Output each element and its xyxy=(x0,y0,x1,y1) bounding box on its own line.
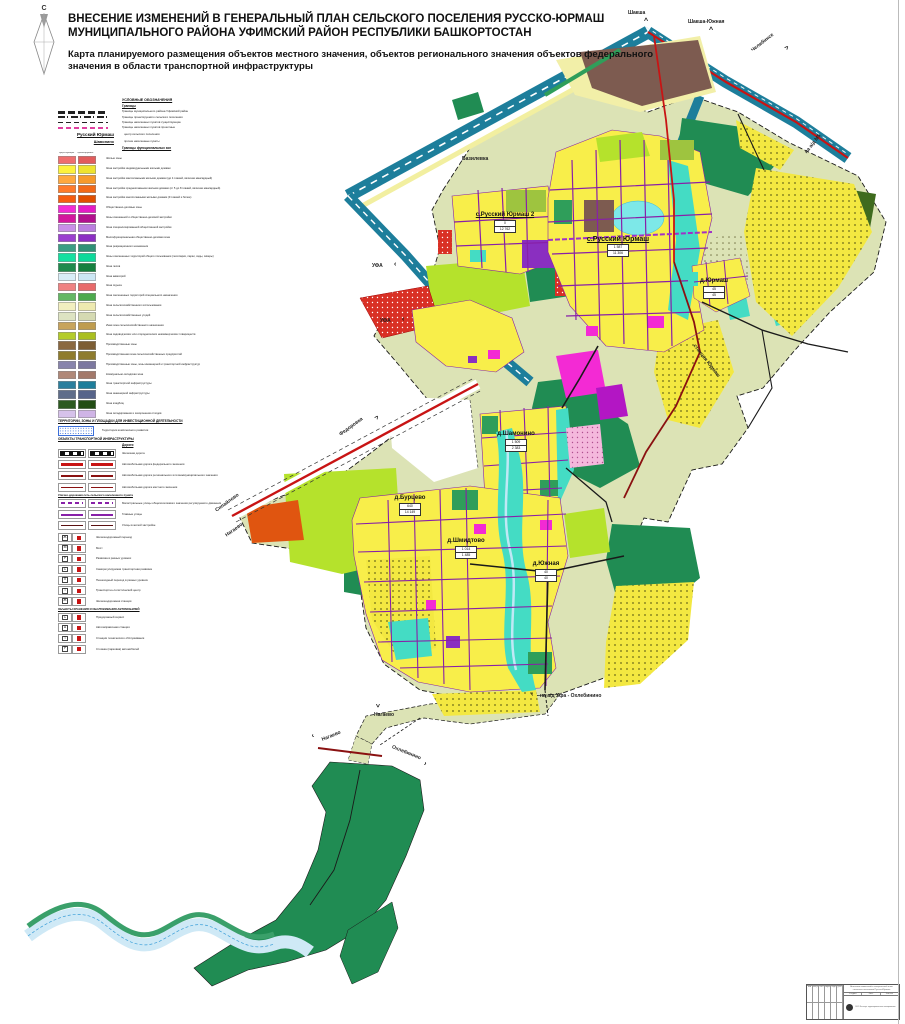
legend-object-row: РРазвязка в разных уровнях xyxy=(58,554,240,563)
object-symbol-existing: Ж xyxy=(58,533,72,542)
object-symbol-existing: Т xyxy=(58,634,72,643)
road-swatch-planned xyxy=(88,499,116,508)
legend-road-row: Автомобильная дорога местного значения xyxy=(58,483,240,492)
stamp-cell: Дата xyxy=(837,985,843,1002)
legend-zone-row: Многофункциональная общественно-деловая … xyxy=(58,234,240,242)
zone-swatch-existing xyxy=(58,263,76,271)
zone-swatch-existing xyxy=(58,205,76,213)
zone-swatch-existing xyxy=(58,341,76,349)
zone-swatch-planned xyxy=(78,156,96,164)
legend-zone-row: Зона сельскохозяйственного использования xyxy=(58,302,240,310)
road-swatch-existing xyxy=(58,521,86,530)
red-square-icon xyxy=(77,599,81,603)
zone-swatch-existing xyxy=(58,410,76,418)
road-swatch-planned xyxy=(88,483,116,492)
legend-object-row: ТСтанция технического обслуживания xyxy=(58,634,240,643)
road-swatch-planned xyxy=(88,471,116,480)
zone-swatch-existing xyxy=(58,175,76,183)
legend-zone-row: Зона застройки среднеэтажными жилыми дом… xyxy=(58,185,240,193)
legend-boundary-row: Границы проектируемого сельского поселен… xyxy=(58,116,240,119)
legend-label: Пешеходный переход в разных уровнях xyxy=(96,579,240,582)
legend-object-row: ААвтозаправочная станция xyxy=(58,623,240,632)
org-logo xyxy=(846,1004,853,1011)
legend-label: Зона отдыха xyxy=(106,285,240,288)
stamp-sheet-label: Лист xyxy=(862,993,880,995)
zone-swatch-existing xyxy=(58,332,76,340)
legend-label: Зона специализированной общественной зас… xyxy=(106,227,240,230)
legend-panel: УСЛОВНЫЕ ОБОЗНАЧЕНИЯ Границы Границы мун… xyxy=(58,96,240,655)
zone-swatch-existing xyxy=(58,165,76,173)
road-swatch-planned xyxy=(88,449,116,458)
legend-label: Зона транспортной инфраструктуры xyxy=(106,383,240,386)
cluster-russky-yurmash-2 xyxy=(452,186,562,274)
object-symbol-planned xyxy=(72,576,86,585)
legend-label: Придорожный сервис xyxy=(96,616,240,619)
legend-invest-title: ТЕРРИТОРИИ, ЗОНЫ И ПЛОЩАДКИ ДЛЯ ИНВЕСТИЦ… xyxy=(58,420,240,424)
invest-pattern-swatch xyxy=(58,426,94,436)
legend-streets-title: Улично-дорожная сеть сельского населенно… xyxy=(58,494,240,497)
road-swatch-planned xyxy=(88,460,116,469)
legend-invest-row: Территории комплексного развития xyxy=(58,426,240,436)
legend-object-row: РСтоянка (парковка) автомобилей xyxy=(58,645,240,654)
legend-label: Улицы в жилой застройке xyxy=(122,524,240,527)
zone-swatch-existing xyxy=(58,371,76,379)
object-symbol-planned xyxy=(72,623,86,632)
road-swatch-planned xyxy=(88,510,116,519)
stamp-stage-label: Стадия xyxy=(844,993,862,995)
zone-swatch-planned xyxy=(78,381,96,389)
object-symbol-existing: Ж xyxy=(58,597,72,606)
legend-center-row: Шамонинопрочие населенные пункты xyxy=(58,140,240,144)
zone-swatch-planned xyxy=(78,312,96,320)
zone-swatch-planned xyxy=(78,390,96,398)
legend-center-row: Русский Юрмашцентр сельского поселения xyxy=(58,132,240,137)
legend-zone-row: Зона кладбищ xyxy=(58,400,240,408)
zone-swatch-planned xyxy=(78,175,96,183)
legend-label: Зона застройки среднеэтажными жилыми дом… xyxy=(106,188,240,191)
zone-swatch-planned xyxy=(78,293,96,301)
boundary-line-swatch xyxy=(58,111,108,114)
legend-label: Саморегулируемая транспортная развязка xyxy=(96,568,240,571)
object-symbol-planned xyxy=(72,613,86,622)
object-symbol-planned xyxy=(72,645,86,654)
settlement-name-sample: Русский Юрмаш xyxy=(58,132,116,137)
legend-zone-row: Зона специализированной общественной зас… xyxy=(58,224,240,232)
object-symbol-planned xyxy=(72,586,86,595)
legend-label: Зона садоводческих или огороднических не… xyxy=(106,334,240,337)
legend-zone-row: Зона инженерной инфраструктуры xyxy=(58,390,240,398)
legend-road-row: Автомобильная дорога федерального значен… xyxy=(58,460,240,469)
legend-label: Железнодорожный переезд xyxy=(96,536,240,539)
legend-road-row: Улицы в жилой застройке xyxy=(58,521,240,530)
legend-zone-row: Зона акваторий xyxy=(58,273,240,281)
legend-road-row: Автомобильная дорога регионального или м… xyxy=(58,471,240,480)
zone-swatch-existing xyxy=(58,283,76,291)
zone-swatch-planned xyxy=(78,400,96,408)
zone-swatch-planned xyxy=(78,322,96,330)
legend-zone-row: Производственные зоны xyxy=(58,341,240,349)
zone-swatch-planned xyxy=(78,302,96,310)
map-title: ВНЕСЕНИЕ ИЗМЕНЕНИЙ В ГЕНЕРАЛЬНЫЙ ПЛАН СЕ… xyxy=(68,12,688,41)
legend-label: Зона застройки малоэтажными жилыми домам… xyxy=(106,178,240,181)
zone-swatch-planned xyxy=(78,273,96,281)
object-symbol-existing: С xyxy=(58,613,72,622)
stamp-org: ООО Институт территориального планирован… xyxy=(855,1007,895,1009)
boundary-line-swatch xyxy=(58,122,108,123)
legend-zone-row: Зоны смешанной и общественно-деловой зас… xyxy=(58,214,240,222)
legend-zone-row: Зона транспортной инфраструктуры xyxy=(58,381,240,389)
legend-label: Территории комплексного развития xyxy=(102,429,240,432)
object-symbol-planned xyxy=(72,634,86,643)
object-symbol-existing: С xyxy=(58,565,72,574)
legend-label: Зона лесов xyxy=(106,266,240,269)
object-symbol-planned xyxy=(72,554,86,563)
north-arrow: С xyxy=(26,2,62,87)
legend-label: Зоны смешанной и общественно-деловой зас… xyxy=(106,217,240,220)
legend-zone-row: Зона отдыха xyxy=(58,283,240,291)
zone-swatch-existing xyxy=(58,381,76,389)
legend-zone-row: Зона застройки многоэтажными жилыми дома… xyxy=(58,195,240,203)
legend-boundary-row: Границы населенных пунктов проектные xyxy=(58,126,240,129)
legend-road-row: Главные улицы xyxy=(58,510,240,519)
legend-zone-row: Коммунально-складская зона xyxy=(58,371,240,379)
zone-swatch-existing xyxy=(58,390,76,398)
road-swatch-existing xyxy=(58,471,86,480)
zone-swatch-planned xyxy=(78,253,96,261)
zone-swatch-planned xyxy=(78,263,96,271)
zone-swatch-existing xyxy=(58,214,76,222)
zone-swatch-planned xyxy=(78,341,96,349)
zone-swatch-planned xyxy=(78,185,96,193)
red-square-icon xyxy=(77,636,81,640)
legend-label: Многофункциональная общественно-деловая … xyxy=(106,237,240,240)
legend-title: УСЛОВНЫЕ ОБОЗНАЧЕНИЯ xyxy=(122,99,240,103)
red-square-icon xyxy=(77,546,81,550)
zone-swatch-existing xyxy=(58,185,76,193)
object-symbol-planned xyxy=(72,533,86,542)
legend-object-row: ММост xyxy=(58,544,240,553)
legend-boundary-row: Границы населенных пунктов существующие xyxy=(58,121,240,124)
zone-swatch-existing xyxy=(58,312,76,320)
zone-swatch-planned xyxy=(78,205,96,213)
legend-zone-row: Зона сельскохозяйственных угодий xyxy=(58,312,240,320)
legend-zone-row: Зона застройки малоэтажными жилыми домам… xyxy=(58,175,240,183)
legend-boundaries-title: Границы xyxy=(122,105,240,109)
map-sheet: { "header": { "title": "ВНЕСЕНИЕ ИЗМЕНЕН… xyxy=(0,0,905,1024)
legend-label: Границы населенных пунктов проектные xyxy=(122,126,240,129)
legend-label: Общественно-деловые зоны xyxy=(106,207,240,210)
legend-object-row: ППешеходный переход в разных уровнях xyxy=(58,576,240,585)
zone-swatch-planned xyxy=(78,214,96,222)
legend-label: Зона инженерной инфраструктуры xyxy=(106,393,240,396)
legend-zone-row: Зона садоводческих или огороднических не… xyxy=(58,332,240,340)
road-swatch-existing xyxy=(58,460,86,469)
zone-swatch-existing xyxy=(58,244,76,252)
legend-object-row: СПридорожный сервис xyxy=(58,613,240,622)
red-square-icon xyxy=(77,589,81,593)
legend-zone-row: Зона складирования и захоронения отходов xyxy=(58,410,240,418)
legend-label: Железная дорога xyxy=(122,452,240,455)
object-symbol-existing: М xyxy=(58,544,72,553)
zone-swatch-planned xyxy=(78,371,96,379)
zone-swatch-planned xyxy=(78,361,96,369)
legend-zone-row: Производственные зоны, зоны инженерной и… xyxy=(58,361,240,369)
legend-transport-title: ОБЪЕКТЫ ТРАНСПОРТНОЙ ИНФРАСТРУКТУРЫ xyxy=(58,438,240,442)
legend-label: Зона озелененных территорий специального… xyxy=(106,295,240,298)
legend-zone-row: Иная зона сельскохозяйственного назначен… xyxy=(58,322,240,330)
object-symbol-planned xyxy=(72,544,86,553)
north-letter: С xyxy=(41,5,46,12)
sheet-frame xyxy=(898,0,899,1024)
zone-swatch-existing xyxy=(58,293,76,301)
legend-label: Магистральные улицы общепоселкового знач… xyxy=(122,502,240,505)
legend-boundary-row: Границы муниципального района Уфимский р… xyxy=(58,110,240,113)
zone-swatch-existing xyxy=(58,195,76,203)
red-square-icon xyxy=(77,647,81,651)
object-symbol-existing: Р xyxy=(58,645,72,654)
red-square-icon xyxy=(77,626,81,630)
legend-objects2-title: ОБЪЕКТЫ ХРАНЕНИЯ И ОБСЛУЖИВАНИЯ АВТОМОБИ… xyxy=(58,608,240,611)
map-subtitle: Карта планируемого размещения объектов м… xyxy=(68,49,688,74)
legend-label: Границы проектируемого сельского поселен… xyxy=(122,116,240,119)
object-symbol-existing: А xyxy=(58,623,72,632)
zone-swatch-existing xyxy=(58,273,76,281)
legend-label: Производственные зоны, зоны инженерной и… xyxy=(106,364,240,367)
legend-road-row: Магистральные улицы общепоселкового знач… xyxy=(58,499,240,508)
legend-label: Производственные зоны xyxy=(106,344,240,347)
legend-label: Автозаправочная станция xyxy=(96,626,240,629)
legend-label: Границы населенных пунктов существующие xyxy=(122,121,240,124)
zone-swatch-existing xyxy=(58,302,76,310)
zone-swatch-planned xyxy=(78,224,96,232)
legend-label: прочие населенные пункты xyxy=(124,140,240,143)
zone-swatch-existing xyxy=(58,400,76,408)
legend-zone-row: Зона рекреационного назначения xyxy=(58,244,240,252)
legend-zone-row: Зоны озелененных территорий общего польз… xyxy=(58,253,240,261)
stamp-doc-line2: сельского поселения Русско-Юрмаш xyxy=(845,989,898,992)
zone-swatch-existing xyxy=(58,361,76,369)
legend-label: Зона рекреационного назначения xyxy=(106,246,240,249)
legend-label: Станция технического обслуживания xyxy=(96,637,240,640)
legend-label: Зона акваторий xyxy=(106,276,240,279)
legend-label: Коммунально-складская зона xyxy=(106,374,240,377)
legend-label: Зоны озелененных территорий общего польз… xyxy=(106,256,240,259)
zone-swatch-existing xyxy=(58,322,76,330)
object-symbol-planned xyxy=(72,597,86,606)
road-swatch-existing xyxy=(58,449,86,458)
object-symbol-existing: Т xyxy=(58,586,72,595)
zone-swatch-existing xyxy=(58,253,76,261)
legend-label: Границы муниципального района Уфимский р… xyxy=(122,110,240,113)
legend-object-row: ЖЖелезнодорожная станция xyxy=(58,597,240,606)
stamp-sheets-label: Листов xyxy=(881,993,899,995)
legend-zone-row: Производственная зона сельскохозяйственн… xyxy=(58,351,240,359)
legend-zone-row: Зона озелененных территорий специального… xyxy=(58,293,240,301)
legend-label: Зона кладбищ xyxy=(106,403,240,406)
legend-label: Главные улицы xyxy=(122,513,240,516)
red-square-icon xyxy=(77,557,81,561)
legend-zone-row: Общественно-деловые зоны xyxy=(58,205,240,213)
zone-swatch-planned xyxy=(78,332,96,340)
legend-label: Зона застройки многоэтажными жилыми дома… xyxy=(106,197,240,200)
object-symbol-existing: П xyxy=(58,576,72,585)
legend-label: Жилые зоны xyxy=(106,158,240,161)
red-square-icon xyxy=(77,578,81,582)
red-square-icon xyxy=(77,615,81,619)
zone-swatch-planned xyxy=(78,195,96,203)
zone-swatch-planned xyxy=(78,234,96,242)
legend-label: Железнодорожная станция xyxy=(96,600,240,603)
legend-object-row: ССаморегулируемая транспортная развязка xyxy=(58,565,240,574)
legend-object-row: ЖЖелезнодорожный переезд xyxy=(58,533,240,542)
legend-label: Зона складирования и захоронения отходов xyxy=(106,413,240,416)
title-block: ИзмКол.учЛист№докПодпДата Внесение измен… xyxy=(806,984,900,1020)
zone-swatch-existing xyxy=(58,234,76,242)
road-swatch-existing xyxy=(58,499,86,508)
red-square-icon xyxy=(77,567,81,571)
boundary-line-swatch xyxy=(58,127,108,129)
legend-label: центр сельского поселения xyxy=(124,133,240,136)
legend-zones-title: Границы функциональных зон xyxy=(122,147,240,151)
legend-label: Иная зона сельскохозяйственного назначен… xyxy=(106,325,240,328)
legend-label: Автомобильная дорога регионального или м… xyxy=(122,474,240,477)
col-existing: существующие xyxy=(58,152,75,154)
legend-label: Производственная зона сельскохозяйственн… xyxy=(106,354,240,357)
red-square-icon xyxy=(77,536,81,540)
legend-zone-row: Жилые зоны xyxy=(58,156,240,164)
zone-swatch-existing xyxy=(58,351,76,359)
object-symbol-planned xyxy=(72,565,86,574)
legend-object-row: ТТранспортно-логистический центр xyxy=(58,586,240,595)
settlement-name-sample: Шамонино xyxy=(58,140,116,144)
zone-swatch-planned xyxy=(78,165,96,173)
legend-label: Зона сельскохозяйственного использования xyxy=(106,305,240,308)
zone-swatch-existing xyxy=(58,156,76,164)
zone-swatch-planned xyxy=(78,410,96,418)
object-symbol-existing: Р xyxy=(58,554,72,563)
legend-label: Мост xyxy=(96,547,240,550)
legend-label: Зона сельскохозяйственных угодий xyxy=(106,315,240,318)
legend-zone-row: Зона лесов xyxy=(58,263,240,271)
legend-road-row: Железная дорога xyxy=(58,449,240,458)
zone-swatch-planned xyxy=(78,244,96,252)
road-swatch-existing xyxy=(58,483,86,492)
road-swatch-planned xyxy=(88,521,116,530)
legend-label: Развязка в разных уровнях xyxy=(96,557,240,560)
legend-zone-row: Зона застройки индивидуальными жилыми до… xyxy=(58,165,240,173)
zone-swatch-planned xyxy=(78,351,96,359)
zone-swatch-planned xyxy=(78,283,96,291)
road-swatch-existing xyxy=(58,510,86,519)
col-planned: проектируемые xyxy=(77,152,94,154)
legend-label: Транспортно-логистический центр xyxy=(96,589,240,592)
legend-label: Стоянка (парковка) автомобилей xyxy=(96,648,240,651)
legend-label: Автомобильная дорога федерального значен… xyxy=(122,463,240,466)
boundary-line-swatch xyxy=(58,116,108,118)
legend-label: Зона застройки индивидуальными жилыми до… xyxy=(106,168,240,171)
zone-swatch-existing xyxy=(58,224,76,232)
legend-label: Автомобильная дорога местного значения xyxy=(122,486,240,489)
legend-roads-title: Дороги xyxy=(122,444,240,448)
